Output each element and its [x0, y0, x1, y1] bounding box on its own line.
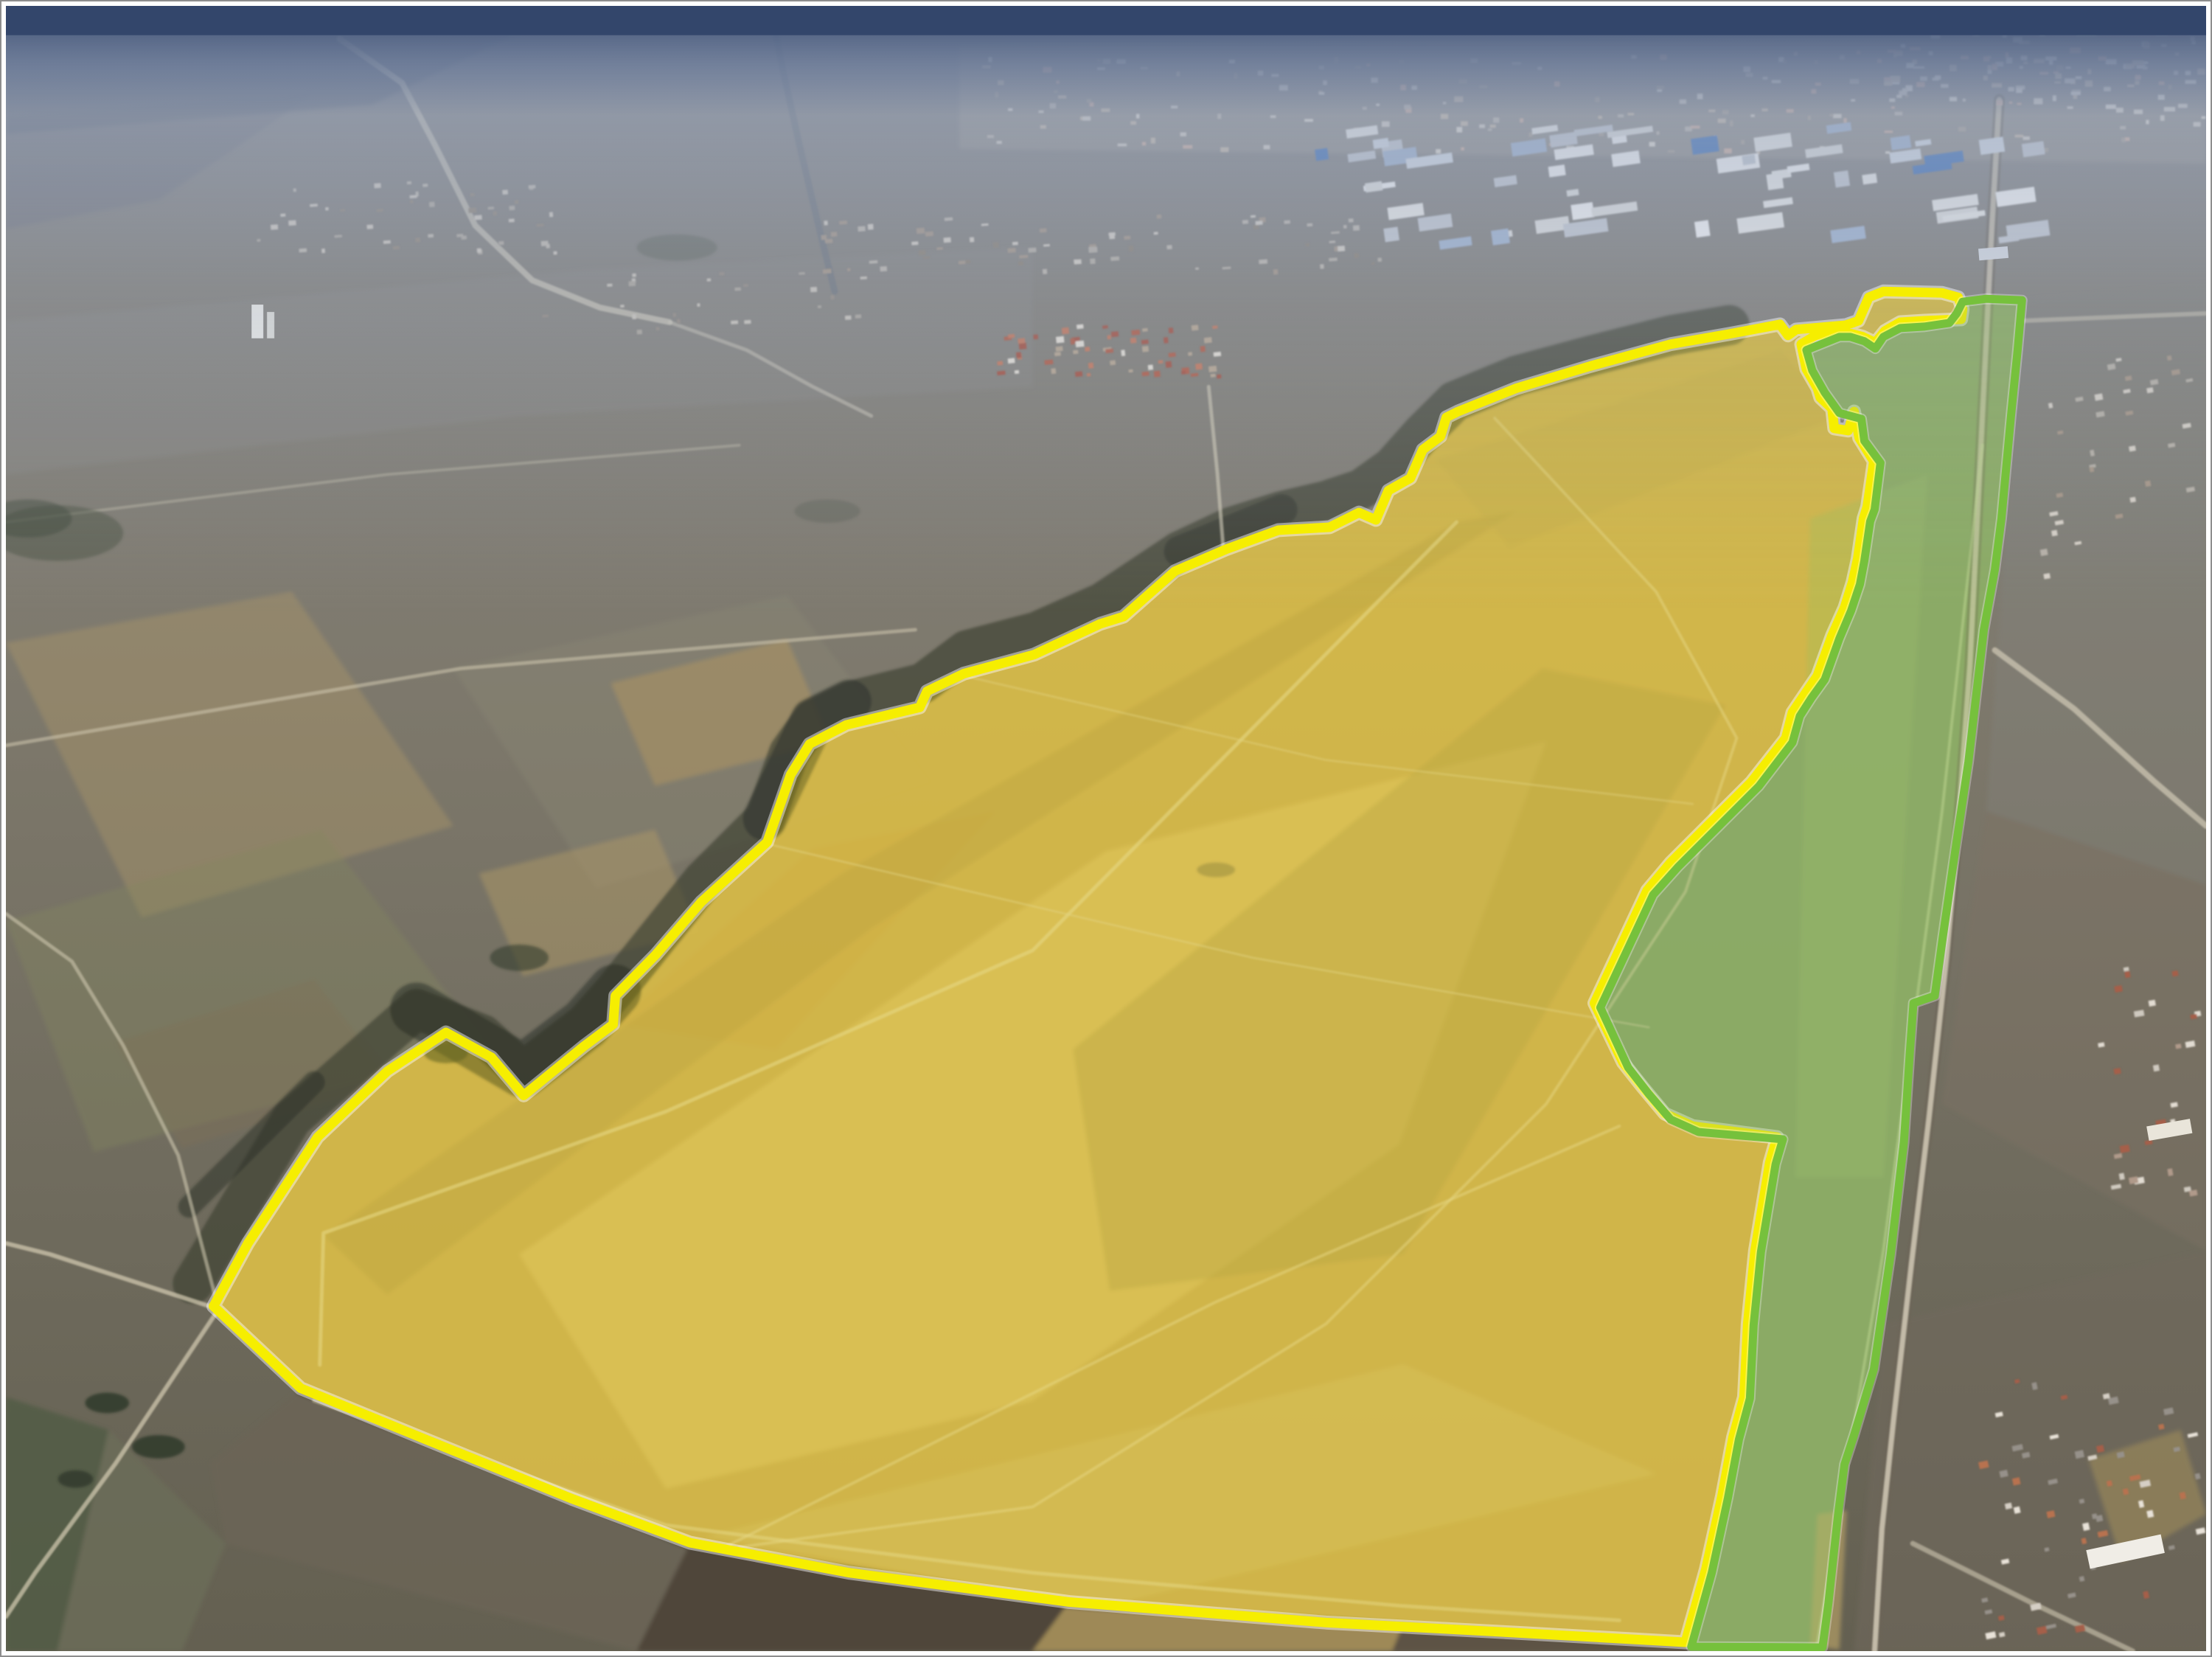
photo-frame	[0, 0, 2212, 1657]
sky-horizon	[6, 6, 2206, 116]
aerial-photo	[6, 6, 2206, 1651]
